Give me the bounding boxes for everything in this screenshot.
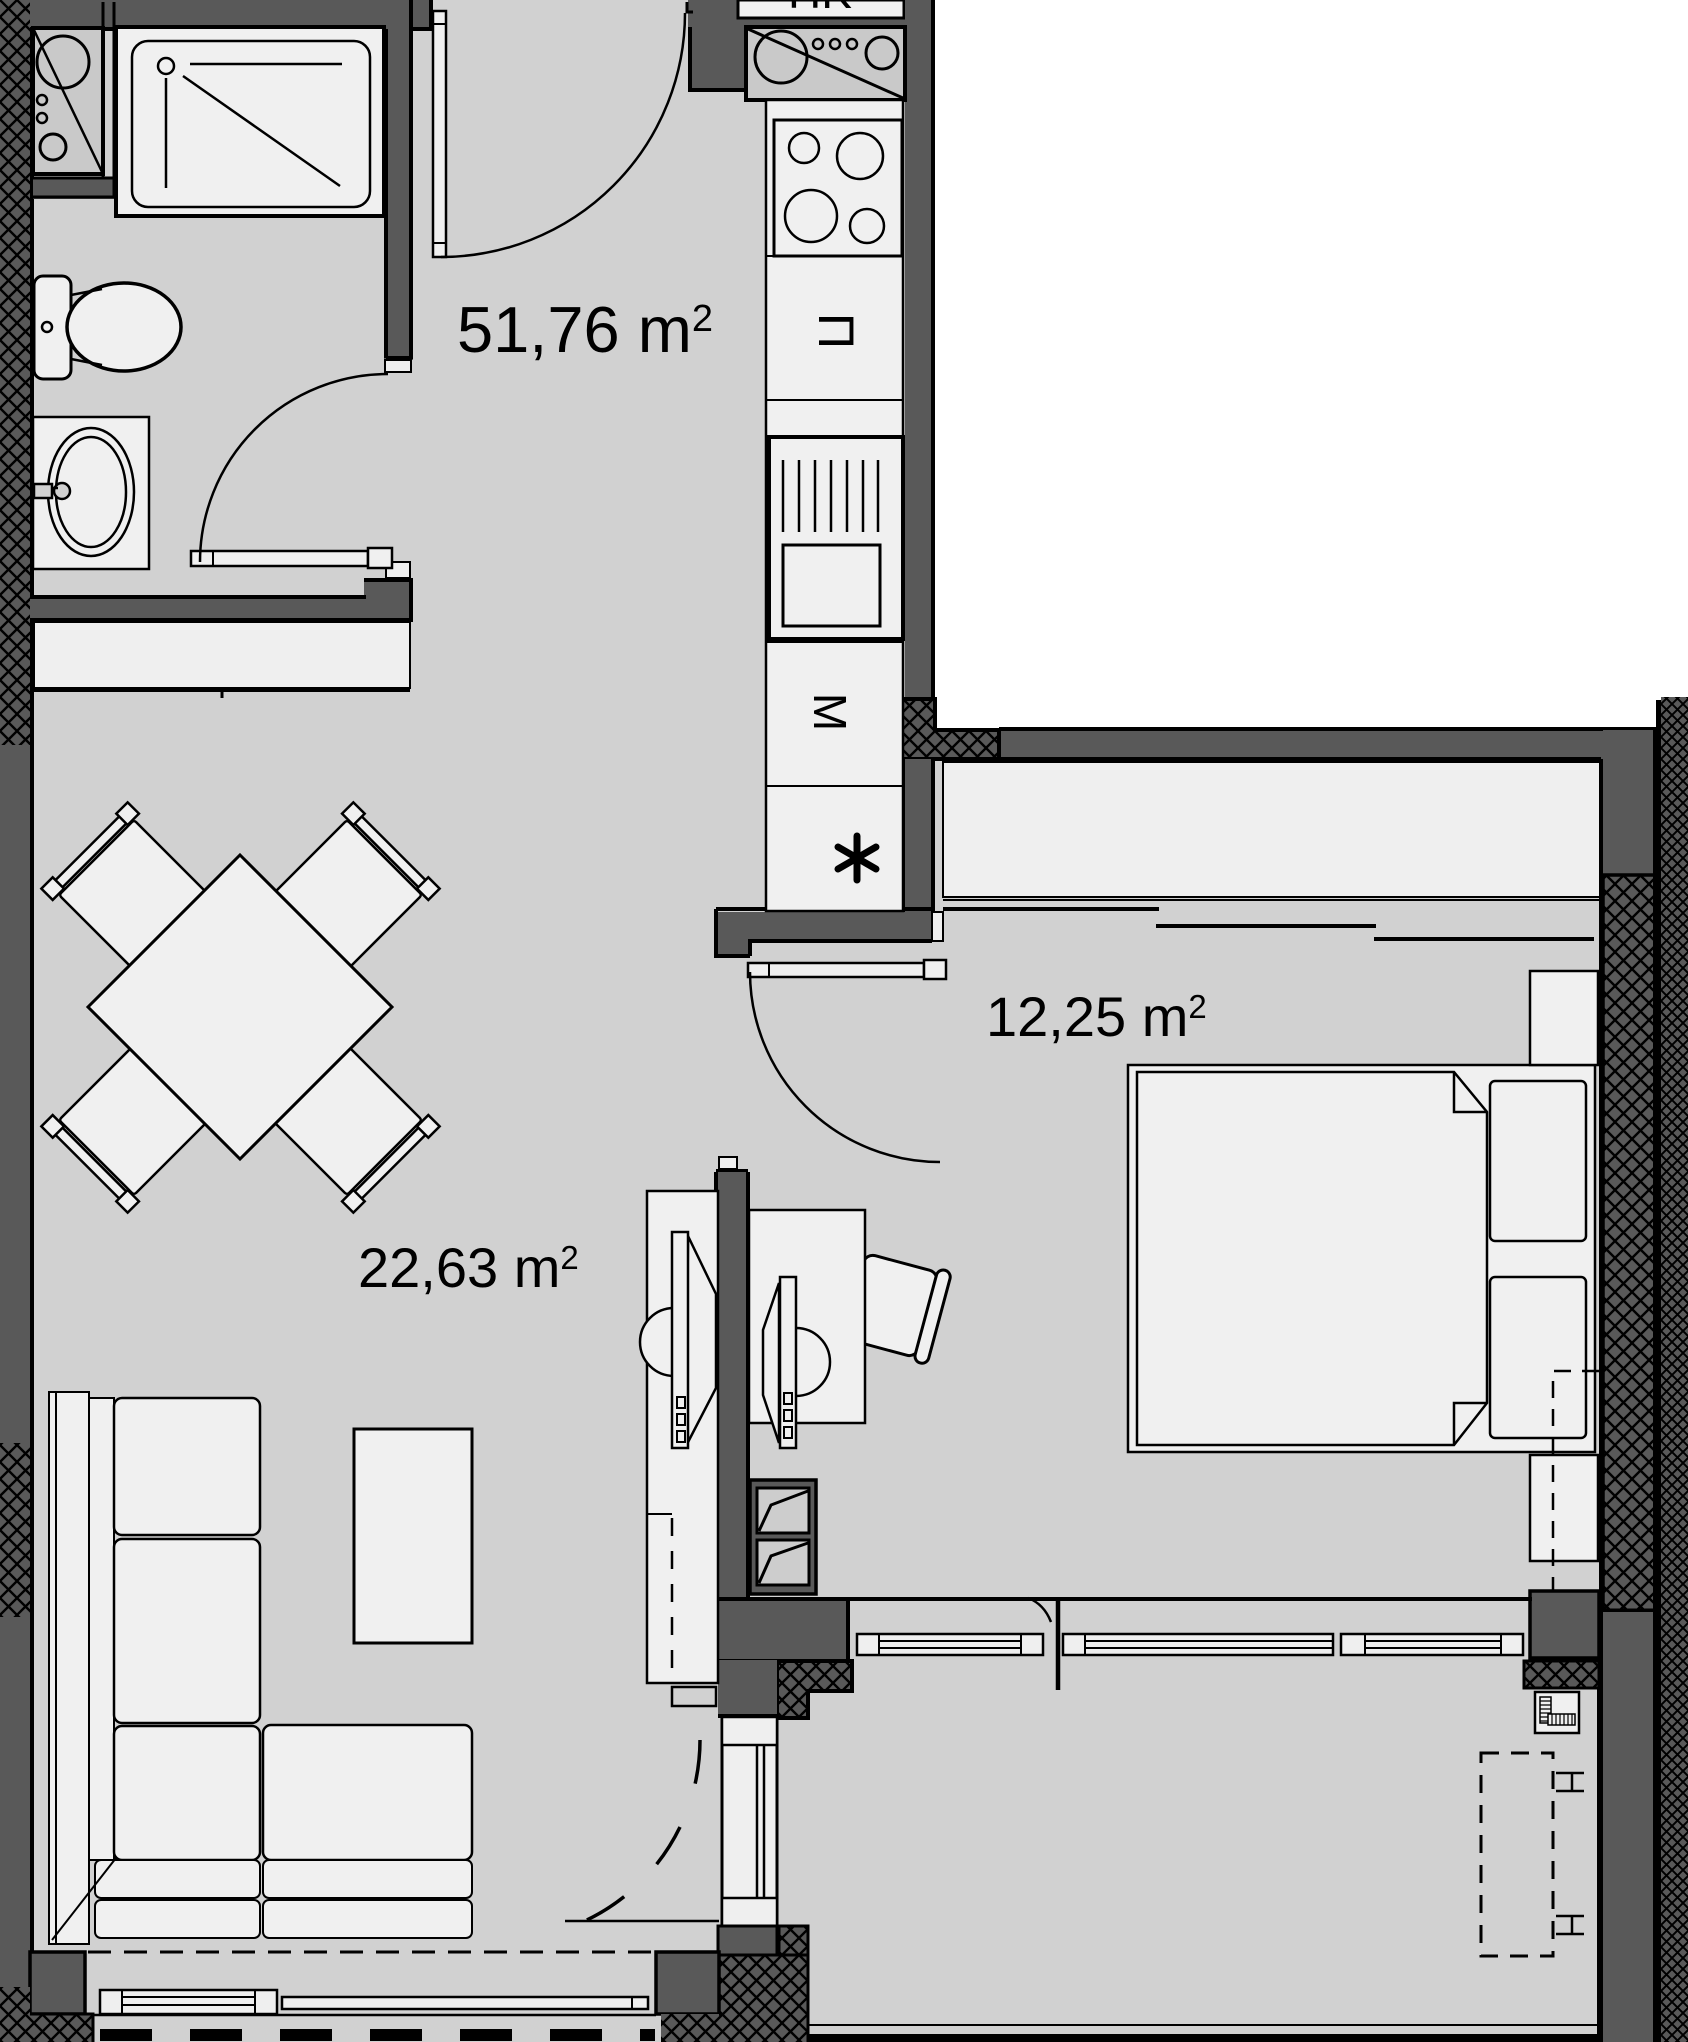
svg-text:12,25 m2: 12,25 m2 <box>986 985 1207 1048</box>
svg-text:HK: HK <box>788 0 852 18</box>
svg-text:22,63 m2: 22,63 m2 <box>358 1236 579 1299</box>
svg-text:51,76 m2: 51,76 m2 <box>457 293 713 366</box>
svg-text:П: П <box>808 313 864 349</box>
svg-text:М: М <box>804 693 856 731</box>
